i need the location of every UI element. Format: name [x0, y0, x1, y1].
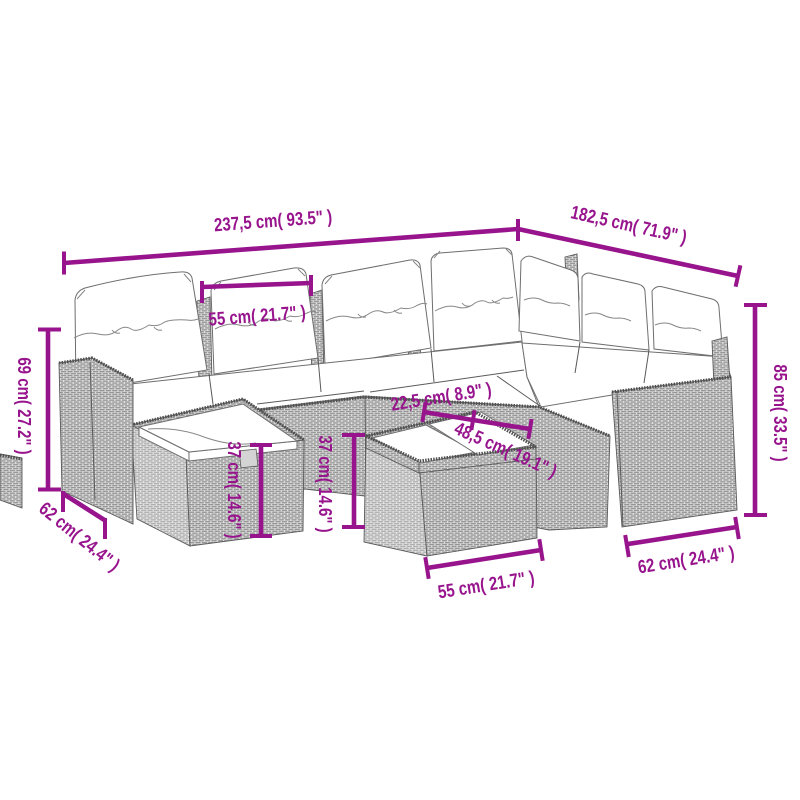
- svg-text:55 cm( 21.7" ): 55 cm( 21.7" ): [436, 567, 535, 603]
- svg-text:37 cm( 14.6" ): 37 cm( 14.6" ): [224, 441, 245, 538]
- svg-text:85 cm( 33.5" ): 85 cm( 33.5" ): [770, 364, 791, 461]
- svg-text:62 cm( 24.4" ): 62 cm( 24.4" ): [636, 542, 735, 578]
- svg-text:182,5 cm( 71.9" ): 182,5 cm( 71.9" ): [569, 202, 689, 248]
- svg-text:237,5 cm( 93.5" ): 237,5 cm( 93.5" ): [213, 206, 332, 236]
- svg-text:37 cm( 14.6" ): 37 cm( 14.6" ): [315, 435, 336, 532]
- svg-text:69 cm( 27.2" ): 69 cm( 27.2" ): [14, 357, 35, 454]
